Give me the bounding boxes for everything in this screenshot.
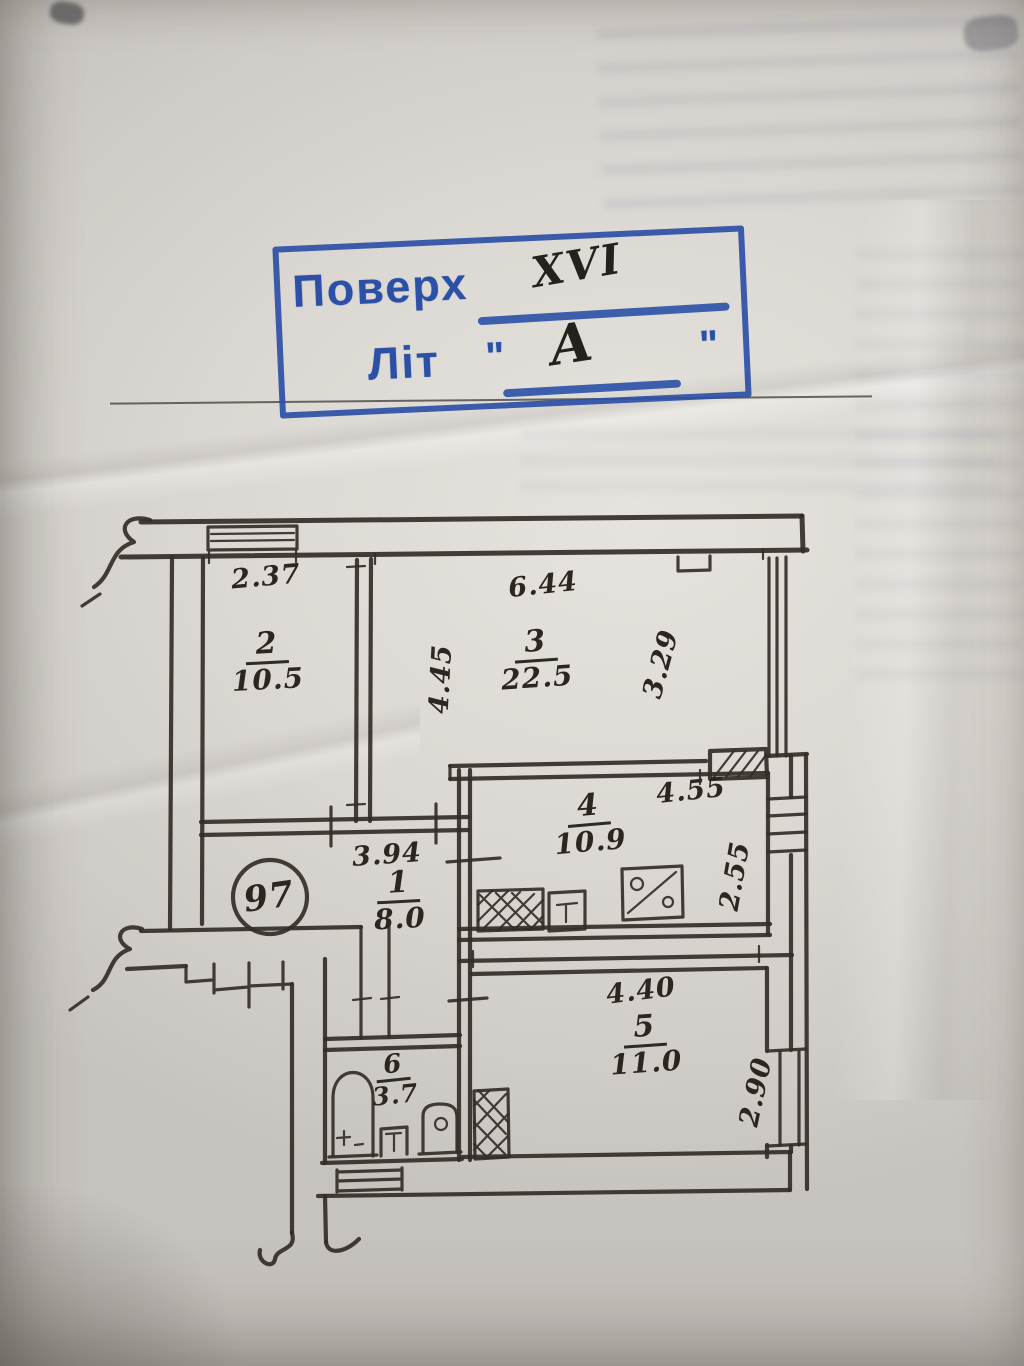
- room-5-number: 5: [621, 1010, 666, 1048]
- letter-quote-close: ": [698, 323, 719, 369]
- room-label-5: 5 11.0: [607, 1009, 684, 1082]
- scan-edge-mark: [962, 13, 1019, 52]
- dim-room2-width: 2.37: [230, 559, 302, 596]
- ink-bleed-through: [597, 15, 1023, 220]
- room-label-4: 4 10.9: [550, 787, 628, 861]
- break-line-squiggle: [94, 518, 150, 587]
- letter-field-value: А: [544, 308, 597, 378]
- room-2-area: 10.5: [231, 662, 305, 698]
- letter-quote-open: ": [485, 334, 506, 380]
- room5-window: [780, 1052, 799, 1145]
- break-line-squiggle: [260, 1233, 293, 1264]
- toilet: [423, 1104, 457, 1152]
- ink-bleed-through: [856, 250, 1024, 680]
- loggia-window: [208, 526, 297, 550]
- stamp-box: Поверх XVI Літ " А ": [272, 225, 751, 418]
- floor-field-underline: [478, 302, 730, 325]
- room-label-3: 3 22.5: [498, 624, 575, 697]
- room-4-number: 4: [565, 788, 611, 827]
- room-2-number: 2: [244, 627, 289, 665]
- scan-edge-mark: [48, 0, 85, 27]
- room-label-1: 1 8.0: [371, 866, 426, 936]
- floor-plan-drawing: [60, 470, 820, 1290]
- room-1-area: 8.0: [373, 901, 426, 936]
- floor-field-value: XVI: [528, 234, 626, 297]
- letter-field-underline: [503, 379, 681, 397]
- room-3-number: 3: [512, 625, 557, 663]
- apartment-number-label: 97: [241, 873, 297, 921]
- room-label-6: 6 3.7: [368, 1049, 420, 1113]
- floor-field-label: Поверх: [291, 258, 469, 318]
- bathtub: [333, 1073, 373, 1157]
- room-6-area: 3.7: [371, 1079, 420, 1112]
- kitchen-window: [768, 797, 806, 852]
- letter-field-label: Літ: [367, 335, 441, 390]
- dim-room2-depth: 4.45: [424, 643, 459, 714]
- room-label-2: 2 10.5: [229, 626, 305, 697]
- room-4-area: 10.9: [553, 823, 628, 861]
- room-5-area: 11.0: [609, 1044, 683, 1081]
- break-line-squiggle: [93, 927, 142, 990]
- room-3-area: 22.5: [500, 659, 574, 696]
- balcony-door-notch: [678, 556, 710, 571]
- ledge: [337, 1168, 402, 1192]
- room-1-number: 1: [376, 866, 421, 904]
